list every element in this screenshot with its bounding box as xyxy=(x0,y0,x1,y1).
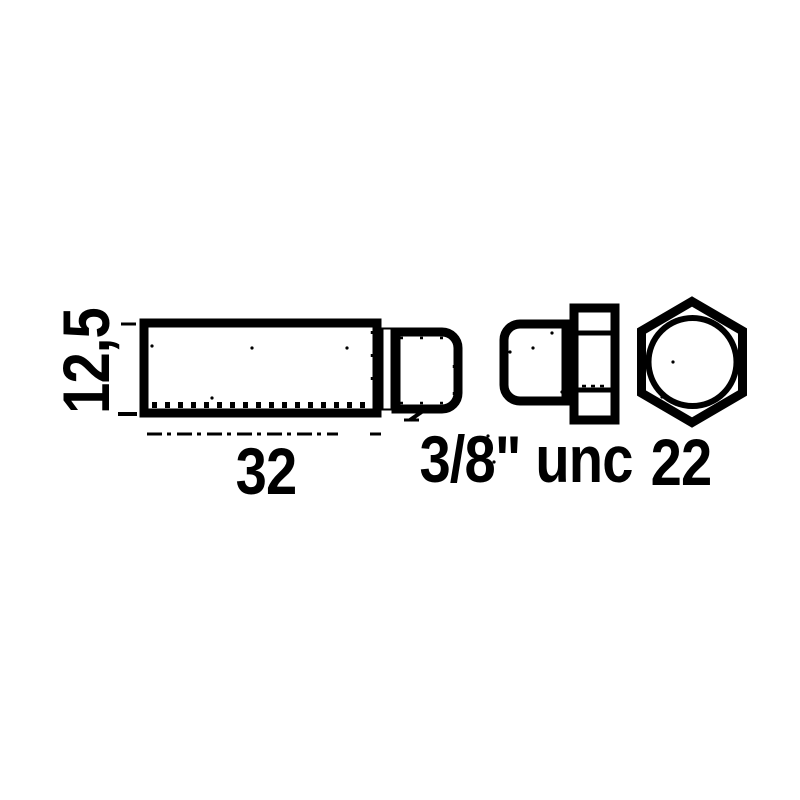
noise-dot xyxy=(660,395,663,398)
plug-thread-stub-outline xyxy=(504,324,566,401)
anode-collar-strip xyxy=(383,329,392,410)
length-dimension-label: 32 xyxy=(236,438,297,504)
anode-thread-stud-outline xyxy=(396,332,458,409)
noise-dot xyxy=(531,346,534,349)
thread-spec-label: 3/8" unc xyxy=(419,426,632,492)
anode-body-outline xyxy=(144,323,377,413)
plug-hex-head-side-outline xyxy=(574,308,615,420)
hex-head-end-view xyxy=(642,302,743,423)
plug-side-view xyxy=(504,308,617,420)
technical-drawing-canvas: 12,5 32 3/8" unc 22 xyxy=(0,0,800,800)
noise-dot xyxy=(345,346,348,349)
hex-across-flats-label: 22 xyxy=(651,429,712,495)
noise-dot xyxy=(250,346,253,349)
noise-dot xyxy=(150,344,153,347)
noise-dot xyxy=(210,396,213,399)
noise-dot xyxy=(508,350,511,353)
noise-dot xyxy=(560,390,563,393)
noise-dot xyxy=(671,360,674,363)
noise-dot xyxy=(550,331,553,334)
anode-body-side-view xyxy=(144,323,458,420)
diameter-dimension-label: 12,5 xyxy=(53,308,119,414)
